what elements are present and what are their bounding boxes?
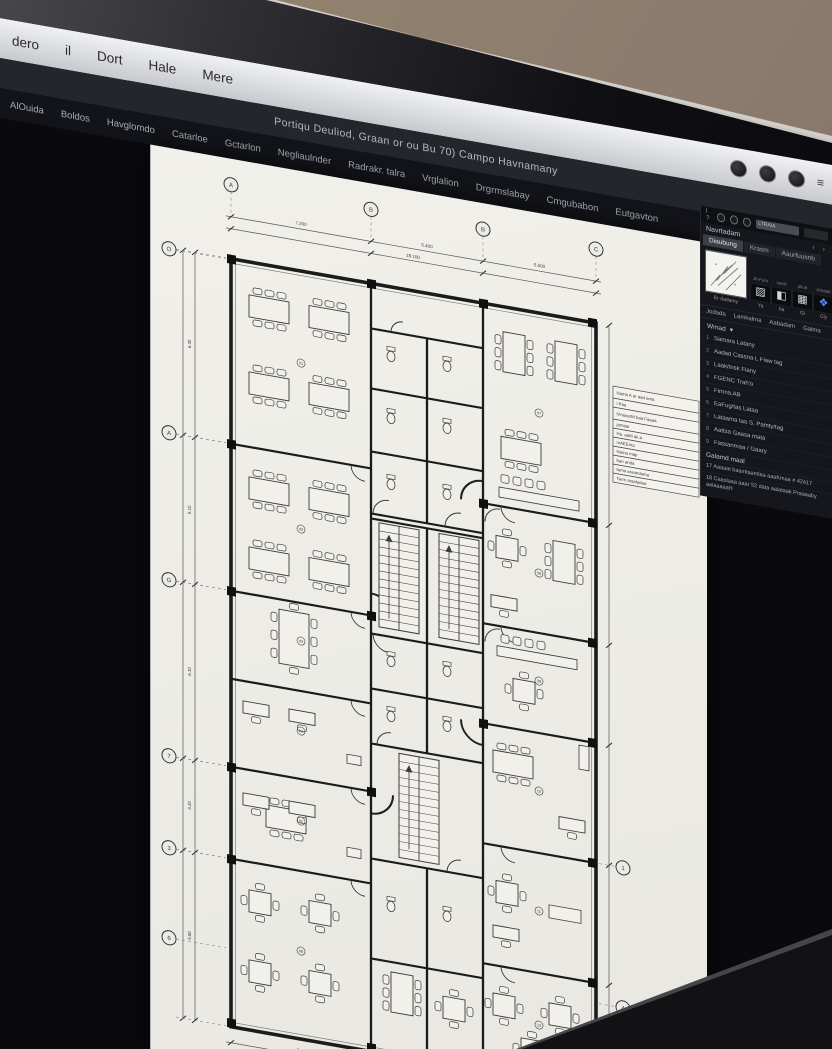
menu-item[interactable]: Catarloe xyxy=(172,128,208,145)
furniture-t6 xyxy=(249,469,289,514)
photo-of-monitor: deroilDortHaleMere ≡ Portiqu Deuliod, Gr… xyxy=(0,0,832,1049)
furniture-t4 xyxy=(241,950,279,995)
furniture-dk xyxy=(491,595,517,620)
hatch-preview[interactable] xyxy=(705,249,747,298)
furniture-dk xyxy=(493,925,519,950)
svg-text:7.200: 7.200 xyxy=(295,220,307,227)
svg-text:03: 03 xyxy=(299,639,303,644)
tool-icon-label: Gi xyxy=(800,310,805,317)
grid-bubble: B xyxy=(476,221,490,237)
layer-number: 3 xyxy=(706,360,714,367)
furniture-dk xyxy=(559,817,585,842)
furniture-wc xyxy=(387,651,395,667)
svg-text:B: B xyxy=(369,207,373,214)
menu-item[interactable]: AlOuida xyxy=(10,99,44,116)
section-tab[interactable]: Lamkalma xyxy=(734,313,762,324)
tool-icon-label: Ya xyxy=(758,303,764,310)
hatch-lines-icon[interactable]: ▨ xyxy=(750,282,771,304)
grid-bubble: 1 xyxy=(616,860,630,876)
menu-item[interactable]: Havglomdo xyxy=(107,116,155,135)
tool-circle-icon[interactable] xyxy=(743,217,751,227)
svg-text:5.500: 5.500 xyxy=(534,262,546,269)
cursor-help-icon[interactable]: l ? xyxy=(706,207,712,222)
svg-text:5.10: 5.10 xyxy=(187,505,192,515)
furniture-t4 xyxy=(488,526,526,571)
furniture-wc xyxy=(387,408,395,424)
furniture-t6v xyxy=(383,971,421,1018)
menu-item[interactable]: Cmgubabon xyxy=(547,194,599,214)
furniture-t4 xyxy=(241,880,279,925)
menu-item[interactable]: Boldos xyxy=(61,108,90,124)
svg-text:B: B xyxy=(481,227,485,234)
menu-item[interactable]: Drgrmslabay xyxy=(476,181,530,201)
grid-bubble: C xyxy=(589,241,603,257)
tool-icon-label: Cly xyxy=(820,314,827,321)
section-tab[interactable]: Aabadam xyxy=(769,320,795,331)
furniture-t4 xyxy=(301,891,339,936)
svg-text:6.10: 6.10 xyxy=(187,666,192,676)
menu-item[interactable]: Negliaulnder xyxy=(278,146,331,166)
secondary-input[interactable] xyxy=(804,227,828,240)
layer-number: 5 xyxy=(706,386,714,393)
furniture-t6 xyxy=(309,479,349,524)
furniture-t4 xyxy=(435,987,473,1032)
menubar-item[interactable]: Dort xyxy=(97,48,123,67)
furniture-t6v xyxy=(547,339,585,386)
drawing-canvas[interactable]: 7.2005.4005.50018.1006.405.106.103.205.8… xyxy=(150,144,707,1049)
svg-text:10: 10 xyxy=(537,789,541,794)
hamburger-menu-icon[interactable]: ≡ xyxy=(817,175,824,190)
tool-icon-cell[interactable]: uand◧ha xyxy=(772,279,791,314)
section-tab[interactable]: Galma xyxy=(803,326,821,335)
menubar-item[interactable]: Mere xyxy=(202,66,233,86)
furniture-t4 xyxy=(301,961,339,1006)
furniture-wc xyxy=(443,661,451,677)
furniture-t4 xyxy=(485,984,523,1029)
grid-bubble: B xyxy=(364,201,378,217)
svg-text:6.40: 6.40 xyxy=(187,339,192,349)
furniture-wc xyxy=(387,896,395,912)
furniture-t6 xyxy=(249,287,289,332)
furniture-t6 xyxy=(309,549,349,594)
grid-bubble: 6 xyxy=(162,930,176,946)
furniture-wc xyxy=(443,418,451,434)
window-control-button[interactable] xyxy=(730,158,747,178)
furniture-t6 xyxy=(493,742,533,787)
svg-text:3.20: 3.20 xyxy=(187,800,192,810)
svg-text:07: 07 xyxy=(537,411,541,416)
furniture-t6v xyxy=(545,539,583,586)
window-controls: ≡ xyxy=(730,158,824,192)
svg-text:O: O xyxy=(167,247,172,254)
furniture-t6 xyxy=(501,428,541,473)
gradient-swirl-icon[interactable]: ❖ xyxy=(813,293,832,315)
svg-text:02: 02 xyxy=(299,527,303,532)
layer-number: 2 xyxy=(706,347,714,354)
svg-text:01: 01 xyxy=(299,361,303,366)
plan-furniture xyxy=(241,285,589,1049)
layer-number: 6 xyxy=(706,399,714,406)
svg-text:G: G xyxy=(167,578,172,585)
svg-text:09: 09 xyxy=(537,679,541,684)
furniture-dk xyxy=(243,793,269,818)
grid-bubble: 3 xyxy=(162,840,176,856)
furniture-stair xyxy=(439,533,479,644)
furniture-dk xyxy=(243,701,269,726)
furniture-t6v xyxy=(495,330,533,377)
tool-circle-icon[interactable] xyxy=(717,212,725,222)
grid-bubble: A xyxy=(224,176,238,192)
screen: deroilDortHaleMere ≡ Portiqu Deuliod, Gr… xyxy=(0,18,832,1049)
grid-bubble: A xyxy=(162,425,176,441)
furniture-wc xyxy=(443,484,451,500)
layer-number: 4 xyxy=(706,373,714,380)
furniture-wc xyxy=(443,356,451,372)
furniture-st4 xyxy=(501,474,545,490)
furniture-t6 xyxy=(249,539,289,584)
svg-text:5.400: 5.400 xyxy=(421,242,433,249)
layer-number: 9 xyxy=(706,438,714,445)
tool-icon-cell[interactable]: Jh-Fum▨Ya xyxy=(751,275,770,310)
furniture-t6 xyxy=(309,374,349,419)
properties-panel: l ? LTRAIA Navrtadam ‹ › DiaubungKrasmAa… xyxy=(700,205,832,519)
menubar-item[interactable]: dero xyxy=(12,33,39,53)
window-control-button[interactable] xyxy=(759,163,776,183)
svg-text:12: 12 xyxy=(537,1023,541,1028)
furniture-t4 xyxy=(488,871,526,916)
window-control-button[interactable] xyxy=(788,168,805,188)
furniture-t8 xyxy=(271,600,317,678)
layer-list: 1Samara Latany2Aadad Cassna L Flaw tag3L… xyxy=(701,331,832,471)
plan-doors xyxy=(351,313,515,983)
tool-circle-icon[interactable] xyxy=(730,214,738,224)
menu-item[interactable]: Radrakr. talra xyxy=(348,159,405,180)
furniture-wc xyxy=(387,346,395,362)
solid-fill-icon[interactable]: ◧ xyxy=(771,286,792,308)
panel-nav-arrows[interactable]: ‹ › xyxy=(812,244,828,254)
furniture-t6 xyxy=(249,364,289,409)
layer-number: 1 xyxy=(706,334,714,341)
grid-bubble: G xyxy=(162,572,176,588)
svg-text:C: C xyxy=(594,247,599,254)
layer-number: 8 xyxy=(706,425,714,432)
menu-item[interactable]: Eutgavton xyxy=(615,206,658,225)
tool-icon-cell[interactable]: pilud▦Gi xyxy=(793,283,812,318)
menubar-item[interactable]: Hale xyxy=(149,57,177,77)
furniture-stair xyxy=(379,523,419,634)
layer-number: 7 xyxy=(706,412,714,419)
furniture-wc xyxy=(387,474,395,490)
furniture-stair xyxy=(399,753,439,864)
svg-text:06: 06 xyxy=(299,949,303,954)
svg-text:18.100: 18.100 xyxy=(406,253,420,260)
pattern-dots-icon[interactable]: ▦ xyxy=(792,290,813,312)
list-header-label: Wmad xyxy=(707,322,726,332)
furniture-wc xyxy=(387,706,395,722)
svg-text:05: 05 xyxy=(299,819,303,824)
section-tab[interactable]: Jodada xyxy=(706,308,726,317)
tool-icons: Jh-Fum▨Yauand◧hapilud▦GiAmaati❖Cly xyxy=(751,257,832,321)
svg-text:08: 08 xyxy=(537,571,541,576)
furniture-t6 xyxy=(309,297,349,342)
menubar-item[interactable]: il xyxy=(65,42,71,58)
tool-icon-cell[interactable]: Amaati❖Cly xyxy=(814,287,832,322)
furniture-wc xyxy=(443,716,451,732)
plan-titleblock: Nama A ar aad amai KaaN'naasrM baa Faaaa… xyxy=(613,386,699,497)
svg-text:11: 11 xyxy=(537,909,541,914)
grid-bubble: O xyxy=(162,241,176,257)
tool-icon-label: ha xyxy=(779,306,785,313)
chevron-down-icon: ▾ xyxy=(730,326,733,335)
menu-item[interactable]: Gctarlon xyxy=(225,137,261,154)
floor-plan-svg: 7.2005.4005.50018.1006.405.106.103.205.8… xyxy=(151,145,707,1049)
layer-label: Firnna.AB xyxy=(714,388,741,399)
grid-bubble: 7 xyxy=(162,748,176,764)
menu-item[interactable]: Vrglalion xyxy=(422,172,459,189)
svg-text:5.80: 5.80 xyxy=(187,930,192,940)
furniture-t4 xyxy=(505,669,543,714)
furniture-wc xyxy=(443,906,451,922)
